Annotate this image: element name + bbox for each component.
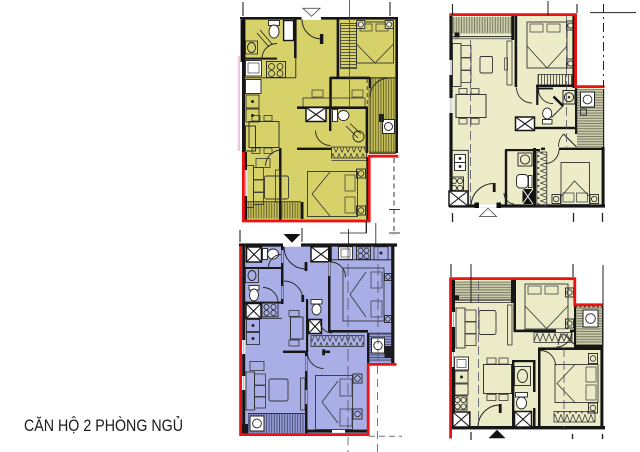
svg-text:CĂN HỘ 2 PHÒNG NGỦ: CĂN HỘ 2 PHÒNG NGỦ [24,416,183,435]
